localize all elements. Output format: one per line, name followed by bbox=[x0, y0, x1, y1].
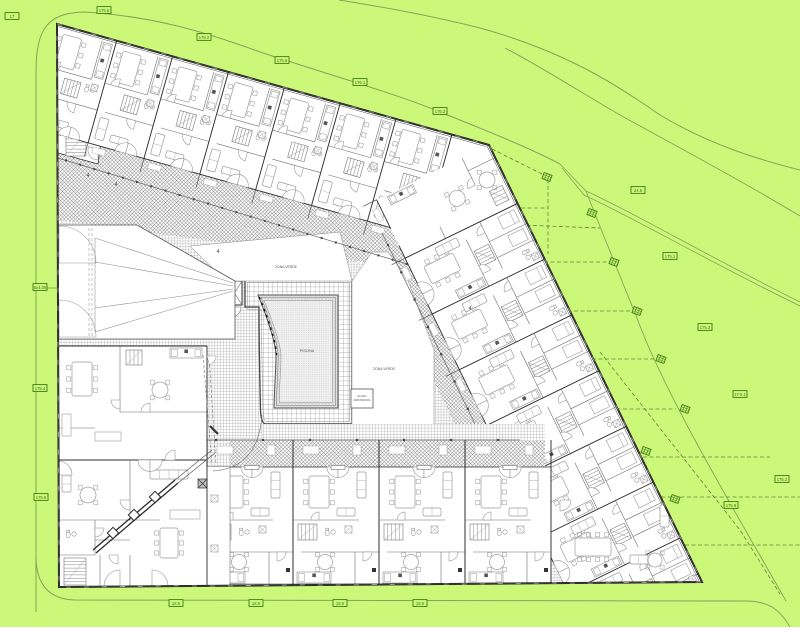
svg-text:178.2: 178.2 bbox=[199, 35, 210, 40]
svg-text:PLANTA: PLANTA bbox=[357, 395, 367, 398]
svg-text:18.6: 18.6 bbox=[172, 601, 181, 606]
svg-text:17: 17 bbox=[10, 14, 15, 19]
svg-text:175.3: 175.3 bbox=[700, 325, 711, 330]
svg-text:5x4.05: 5x4.05 bbox=[34, 285, 47, 290]
svg-text:175.4: 175.4 bbox=[35, 386, 46, 391]
svg-text:ZONA VERDE: ZONA VERDE bbox=[373, 367, 396, 371]
svg-text:176.3: 176.3 bbox=[435, 109, 446, 114]
svg-text:DEPURADORA: DEPURADORA bbox=[354, 399, 371, 402]
svg-text:175.5: 175.5 bbox=[36, 495, 47, 500]
svg-text:18.6: 18.6 bbox=[252, 601, 261, 606]
svg-text:18.6: 18.6 bbox=[336, 601, 345, 606]
svg-text:24.6: 24.6 bbox=[634, 188, 643, 193]
svg-text:17-5.1: 17-5.1 bbox=[734, 392, 747, 397]
svg-text:18.6: 18.6 bbox=[416, 601, 425, 606]
svg-text:175.1: 175.1 bbox=[665, 254, 676, 259]
svg-text:4: 4 bbox=[469, 306, 472, 312]
svg-text:176.1: 176.1 bbox=[355, 80, 366, 85]
svg-text:4: 4 bbox=[115, 182, 118, 188]
svg-text:ZONA VERDE: ZONA VERDE bbox=[275, 265, 298, 269]
svg-text:175.6: 175.6 bbox=[99, 8, 110, 13]
svg-text:175.2: 175.2 bbox=[777, 477, 788, 482]
svg-text:4: 4 bbox=[217, 249, 220, 255]
svg-text:4: 4 bbox=[87, 173, 90, 179]
svg-text:175.6: 175.6 bbox=[277, 58, 288, 63]
svg-text:PISCINA: PISCINA bbox=[300, 349, 315, 353]
svg-text:175.9: 175.9 bbox=[726, 503, 737, 508]
